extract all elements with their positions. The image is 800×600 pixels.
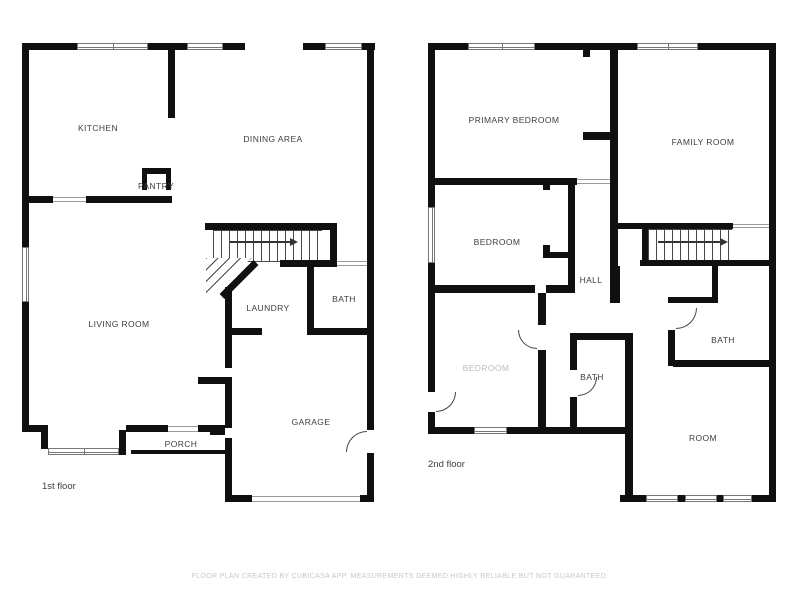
wall (673, 360, 769, 367)
door-opening (733, 224, 769, 228)
room-label-room: ROOM (689, 433, 717, 443)
wall (712, 266, 718, 303)
floor-label-2nd: 2nd floor (428, 459, 465, 470)
room-label-bedroom-faded: BEDROOM (463, 363, 510, 373)
room-label-bath-right: BATH (711, 335, 735, 345)
floor-plan-canvas: KITCHEN DINING AREA PANTRY LIVING ROOM L… (0, 0, 800, 600)
wall (668, 297, 718, 303)
room-label-bath-center: BATH (580, 372, 604, 382)
room-label-hall: HALL (580, 275, 603, 285)
wall (640, 260, 770, 266)
room-label-bedroom: BEDROOM (474, 237, 521, 247)
disclaimer-text: FLOOR PLAN CREATED BY CUBICASA APP. MEAS… (192, 573, 609, 580)
second-floor-plan: PRIMARY BEDROOM FAMILY ROOM BEDROOM HALL… (0, 0, 800, 600)
wall (642, 228, 648, 262)
stair-treads (648, 229, 732, 263)
room-label-primary-bedroom: PRIMARY BEDROOM (469, 115, 560, 125)
stair-direction-arrow (720, 238, 728, 246)
stair-direction-line (658, 241, 722, 243)
wall (612, 266, 620, 303)
room-label-family-room: FAMILY ROOM (672, 137, 735, 147)
